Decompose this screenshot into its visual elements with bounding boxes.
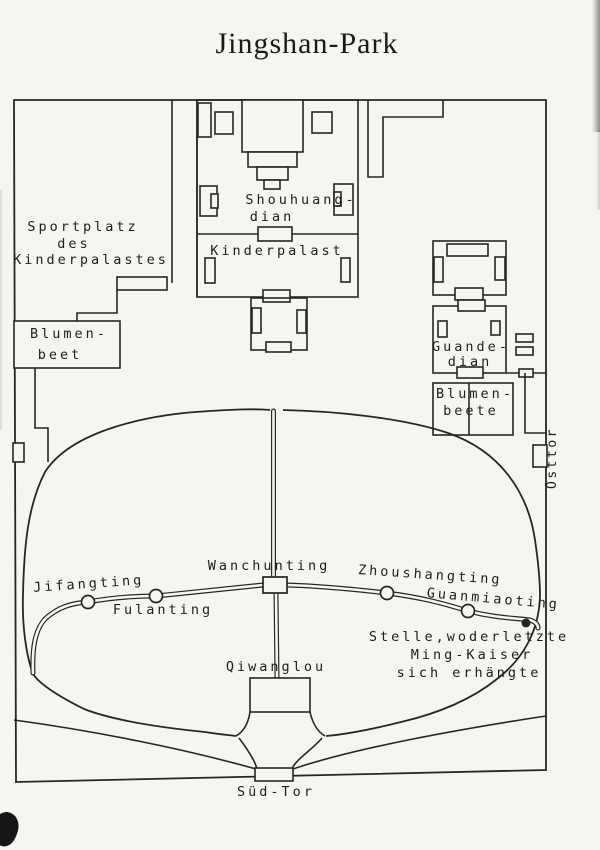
- blumenbeete-east-line2: beete: [443, 403, 499, 419]
- corner-pavilion-nw: [215, 112, 233, 134]
- fulanting-label: Fulanting: [113, 602, 213, 618]
- northeast-courtyard: [433, 241, 506, 300]
- compound-middle-gate: [258, 227, 292, 241]
- guandedian-label-line2: dian: [448, 354, 493, 370]
- blumenbeete-east-line1: Blumen-: [436, 386, 514, 402]
- lower-courtyard: [251, 298, 307, 352]
- ming-kaiser-line2: Ming-Kaiser: [411, 647, 533, 663]
- shouhuangdian-label-line1: Shouhuang-: [245, 192, 356, 208]
- side-pavilion-west: [200, 186, 218, 216]
- sportplatz-label-line1: Sportplatz: [27, 219, 138, 235]
- scanned-map-page: Jingshan-Park Sportplatz des Kinderpalas…: [0, 0, 600, 836]
- kinderpalast-west-hall: [205, 258, 215, 283]
- terrace-step-upper: [516, 334, 533, 342]
- qiwanglou-building: [250, 678, 310, 712]
- ming-kaiser-annotation: Stelle,woderletzte Ming-Kaiser sich erhä…: [369, 629, 569, 681]
- guandedian-label: Guande- dian: [432, 339, 510, 370]
- blumenbeet-west-line2: beet: [38, 347, 83, 363]
- ming-emperor-spot-marker: [522, 619, 531, 628]
- qiwanglou-label: Qiwanglou: [226, 659, 326, 675]
- shouhuangdian-hall: [242, 100, 303, 189]
- sportplatz-label-line2: des: [57, 236, 90, 252]
- sportplatz-label-line3: Kinderpalastes: [13, 252, 169, 268]
- shouhuangdian-label-line2: dian: [250, 209, 295, 225]
- sportplatz-label: Sportplatz des Kinderpalastes: [13, 219, 169, 268]
- pavilion-zhoushangting: [381, 587, 394, 600]
- jifangting-label: Jifangting: [33, 572, 145, 596]
- pavilion-fulanting: [150, 590, 163, 603]
- northeast-corridor: [368, 100, 443, 177]
- corner-pavilion-ne: [312, 112, 332, 133]
- ming-kaiser-line3: sich erhängte: [397, 665, 542, 681]
- blumenbeet-west-steps: [35, 368, 48, 462]
- pavilion-wanchunting: [263, 577, 287, 593]
- compound-south-gate: [263, 290, 290, 302]
- jingshan-park-map: Jingshan-Park Sportplatz des Kinderpalas…: [0, 0, 600, 836]
- sportplatz-boundary: [77, 100, 197, 321]
- south-gate-label: Süd-Tor: [237, 784, 315, 800]
- blumenbeete-east-label: Blumen- beete: [436, 386, 514, 419]
- east-gate-label: Osttor: [545, 427, 560, 489]
- pavilion-jifangting: [82, 596, 95, 609]
- zhoushangting-label: Zhoushangting: [358, 562, 503, 588]
- south-approach-lines: [14, 716, 546, 769]
- west-gate: [13, 443, 24, 462]
- blumenbeet-west-line1: Blumen-: [30, 326, 108, 342]
- map-title: Jingshan-Park: [216, 27, 399, 60]
- qiwanglou-funnel: [236, 712, 325, 769]
- pavilion-guanmiaoting: [462, 605, 475, 618]
- south-gate: [255, 768, 293, 781]
- terrace-step-lower: [516, 347, 533, 355]
- wanchunting-label: Wanchunting: [208, 558, 330, 574]
- kinderpalast-east-hall: [341, 258, 350, 282]
- guandedian-label-line1: Guande-: [432, 339, 510, 355]
- ming-kaiser-line1: Stelle,woderletzte: [369, 629, 569, 645]
- kinderpalast-label: Kinderpalast: [210, 243, 344, 259]
- compound-west-annex: [198, 103, 211, 137]
